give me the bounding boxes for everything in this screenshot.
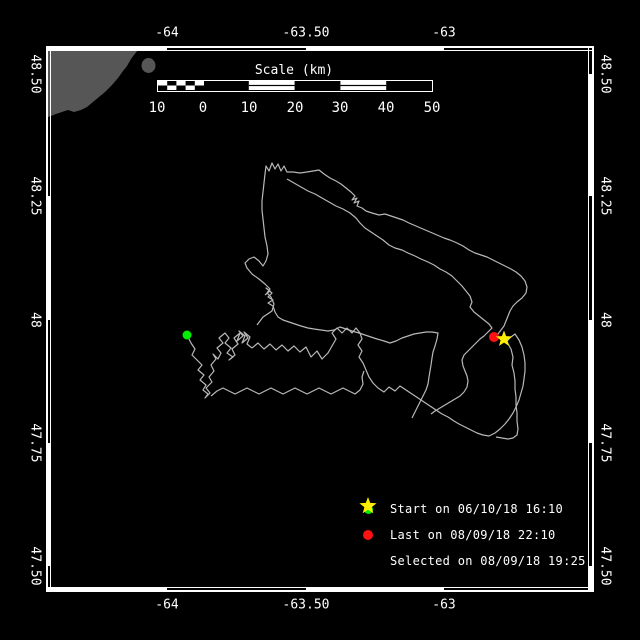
legend-item-last: Last on 08/09/18 22:10: [358, 522, 586, 548]
y-axis-tick-label-left: 48.25: [28, 176, 43, 215]
x-axis-tick-label-bottom: -63: [432, 598, 455, 613]
legend: Start on 06/10/18 16:10 Last on 08/09/18…: [358, 496, 586, 574]
scale-bar-label: 10: [149, 100, 166, 116]
drifter-track: [496, 342, 518, 439]
y-axis-tick-label-left: 48.50: [28, 54, 43, 93]
legend-item-label: Start on 06/10/18 16:10: [390, 502, 563, 516]
y-axis-tick-label-right: 47.50: [598, 546, 613, 585]
scale-bar-label: 40: [378, 100, 395, 116]
scale-bar-segment-divider: [249, 85, 295, 86]
scale-bar-segment-divider: [340, 85, 386, 86]
frame-segment: [589, 320, 594, 443]
legend-item-label: Last on 08/09/18 22:10: [390, 528, 556, 542]
drifter-track: [252, 328, 525, 436]
x-axis-tick-label-bottom: -63.50: [283, 598, 330, 613]
x-axis-tick-label-bottom: -64: [155, 598, 178, 613]
legend-item-selected: Selected on 08/09/18 19:25: [358, 548, 586, 574]
y-axis-tick-label-right: 47.75: [598, 423, 613, 462]
frame-inner-right: [588, 46, 589, 592]
x-axis-tick-label-top: -63: [432, 26, 455, 41]
frame-segment: [46, 46, 167, 51]
drifter-track: [188, 331, 252, 398]
scale-bar-cell: [167, 86, 176, 91]
y-axis-tick-label-left: 47.75: [28, 423, 43, 462]
frame-segment: [46, 196, 51, 320]
frame-segment: [306, 46, 444, 51]
frame-segment: [46, 443, 51, 566]
scale-bar-cell: [186, 86, 195, 91]
frame-segment: [46, 587, 167, 592]
frame-segment: [306, 587, 444, 592]
map-plot: -64 -63.50 -63 -64 -63.50 -63 48.50 48.2…: [0, 0, 640, 640]
y-axis-tick-label-right: 48: [598, 312, 613, 328]
frame-segment: [589, 566, 594, 592]
legend-item-start: Start on 06/10/18 16:10: [358, 496, 586, 522]
island: [142, 58, 156, 73]
drifter-track: [287, 179, 492, 414]
scale-bar-label: 10: [241, 100, 258, 116]
drifter-track: [265, 288, 438, 418]
y-axis-tick-label-left: 47.50: [28, 546, 43, 585]
selected-marker-icon: [358, 552, 378, 570]
scale-bar-label: 0: [199, 100, 207, 116]
x-axis-tick-label-top: -63.50: [283, 26, 330, 41]
drifter-track: [245, 163, 527, 337]
y-axis-tick-label-left: 48: [28, 312, 43, 328]
y-axis-tick-label-right: 48.25: [598, 176, 613, 215]
scale-bar-cell: [195, 81, 204, 86]
scale-bar-cell: [176, 81, 185, 86]
y-axis-tick-label-right: 48.50: [598, 54, 613, 93]
scale-bar-cell: [158, 81, 167, 86]
scale-bar-label: 20: [287, 100, 304, 116]
drifter-track: [211, 371, 364, 396]
legend-item-label: Selected on 08/09/18 19:25: [390, 554, 586, 568]
start-point-marker: [183, 331, 192, 340]
x-axis-tick-label-top: -64: [155, 26, 178, 41]
landmass: [48, 48, 138, 117]
last-marker-icon: [358, 526, 378, 544]
frame-segment: [589, 74, 594, 196]
scale-bar-label: 30: [332, 100, 349, 116]
scale-bar-title: Scale (km): [255, 63, 333, 78]
scale-bar-label: 50: [424, 100, 441, 116]
